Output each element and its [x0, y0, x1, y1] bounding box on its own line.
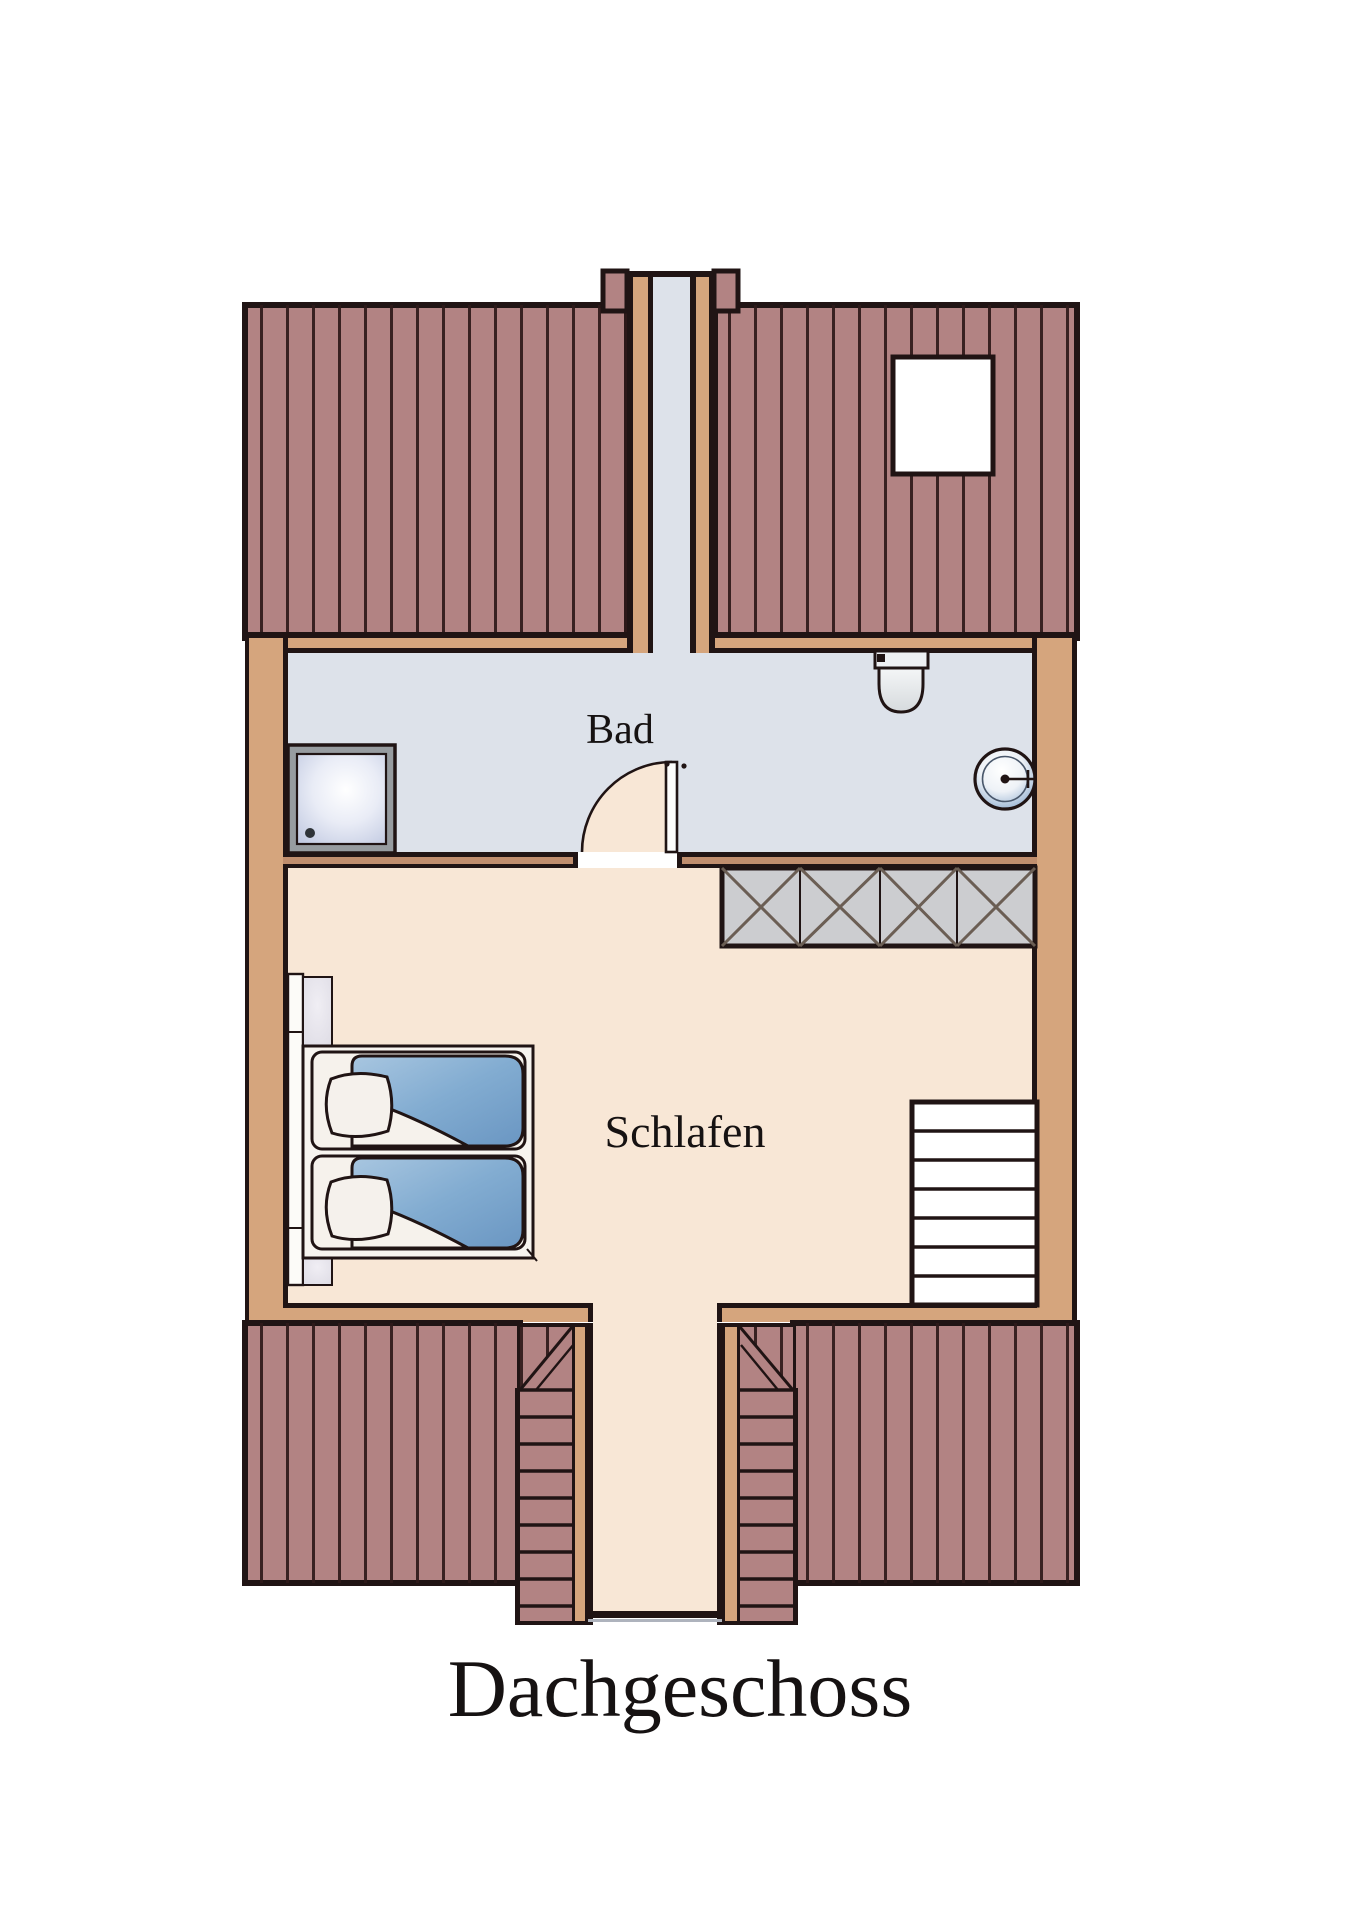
upper-stairs [912, 1102, 1037, 1305]
toilet [875, 651, 928, 712]
headboard [288, 974, 303, 1285]
roof-dormer-right-cheek [714, 271, 738, 311]
stairwell-shaft [627, 271, 715, 661]
door-hinge-dot [681, 763, 686, 768]
toilet-bowl [879, 668, 923, 712]
floorplan-drawing: Bad Schlafen Dachgeschoss [0, 0, 1345, 1920]
door-hinge-dot [664, 761, 669, 766]
bedroom-bottom-wall-left [283, 1303, 593, 1322]
shower [288, 745, 395, 853]
roof-dormer-left-cheek [603, 271, 627, 311]
room-label-bad: Bad [586, 707, 654, 753]
washbasin [975, 749, 1036, 809]
pillow-top [326, 1073, 392, 1136]
floor-title: Dachgeschoss [448, 1643, 913, 1734]
wardrobe [722, 868, 1035, 946]
left-outer-wall [245, 638, 288, 1328]
landing-threshold-shadow [588, 1619, 722, 1622]
toilet-flush-button [877, 654, 885, 662]
pillow-bottom [326, 1176, 392, 1239]
landing-threshold [593, 1611, 717, 1618]
wardrobe-body [722, 868, 1035, 946]
shaft-channel [653, 277, 690, 661]
shower-drain [305, 828, 315, 838]
door-leaf [666, 762, 677, 852]
top-roof-left-stripes [245, 305, 627, 638]
skylight-window [893, 357, 993, 474]
stair-flight-left [515, 1323, 593, 1625]
room-label-schlafen: Schlafen [605, 1106, 766, 1157]
floorplan-page: Bad Schlafen Dachgeschoss [0, 0, 1345, 1920]
washbasin-drain [1001, 775, 1010, 784]
stair-flight-right [717, 1323, 798, 1625]
stair-landing-channel [593, 1303, 717, 1615]
bedside-block-top [303, 977, 332, 1048]
